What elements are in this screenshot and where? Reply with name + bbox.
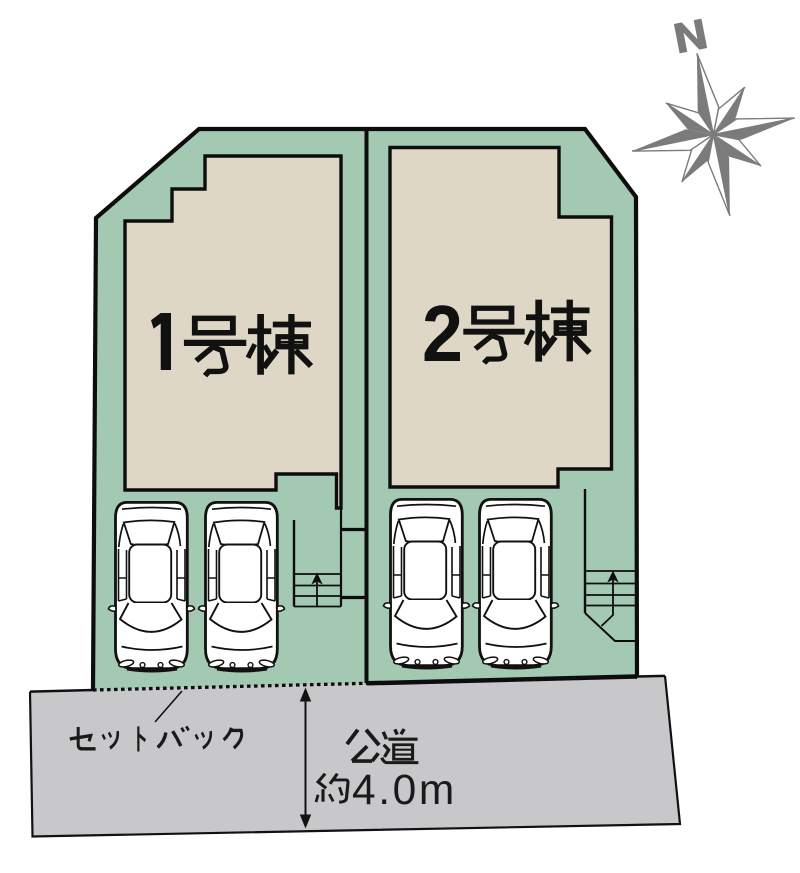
svg-text:4.0m: 4.0m: [352, 767, 457, 814]
svg-text:2: 2: [422, 289, 463, 379]
